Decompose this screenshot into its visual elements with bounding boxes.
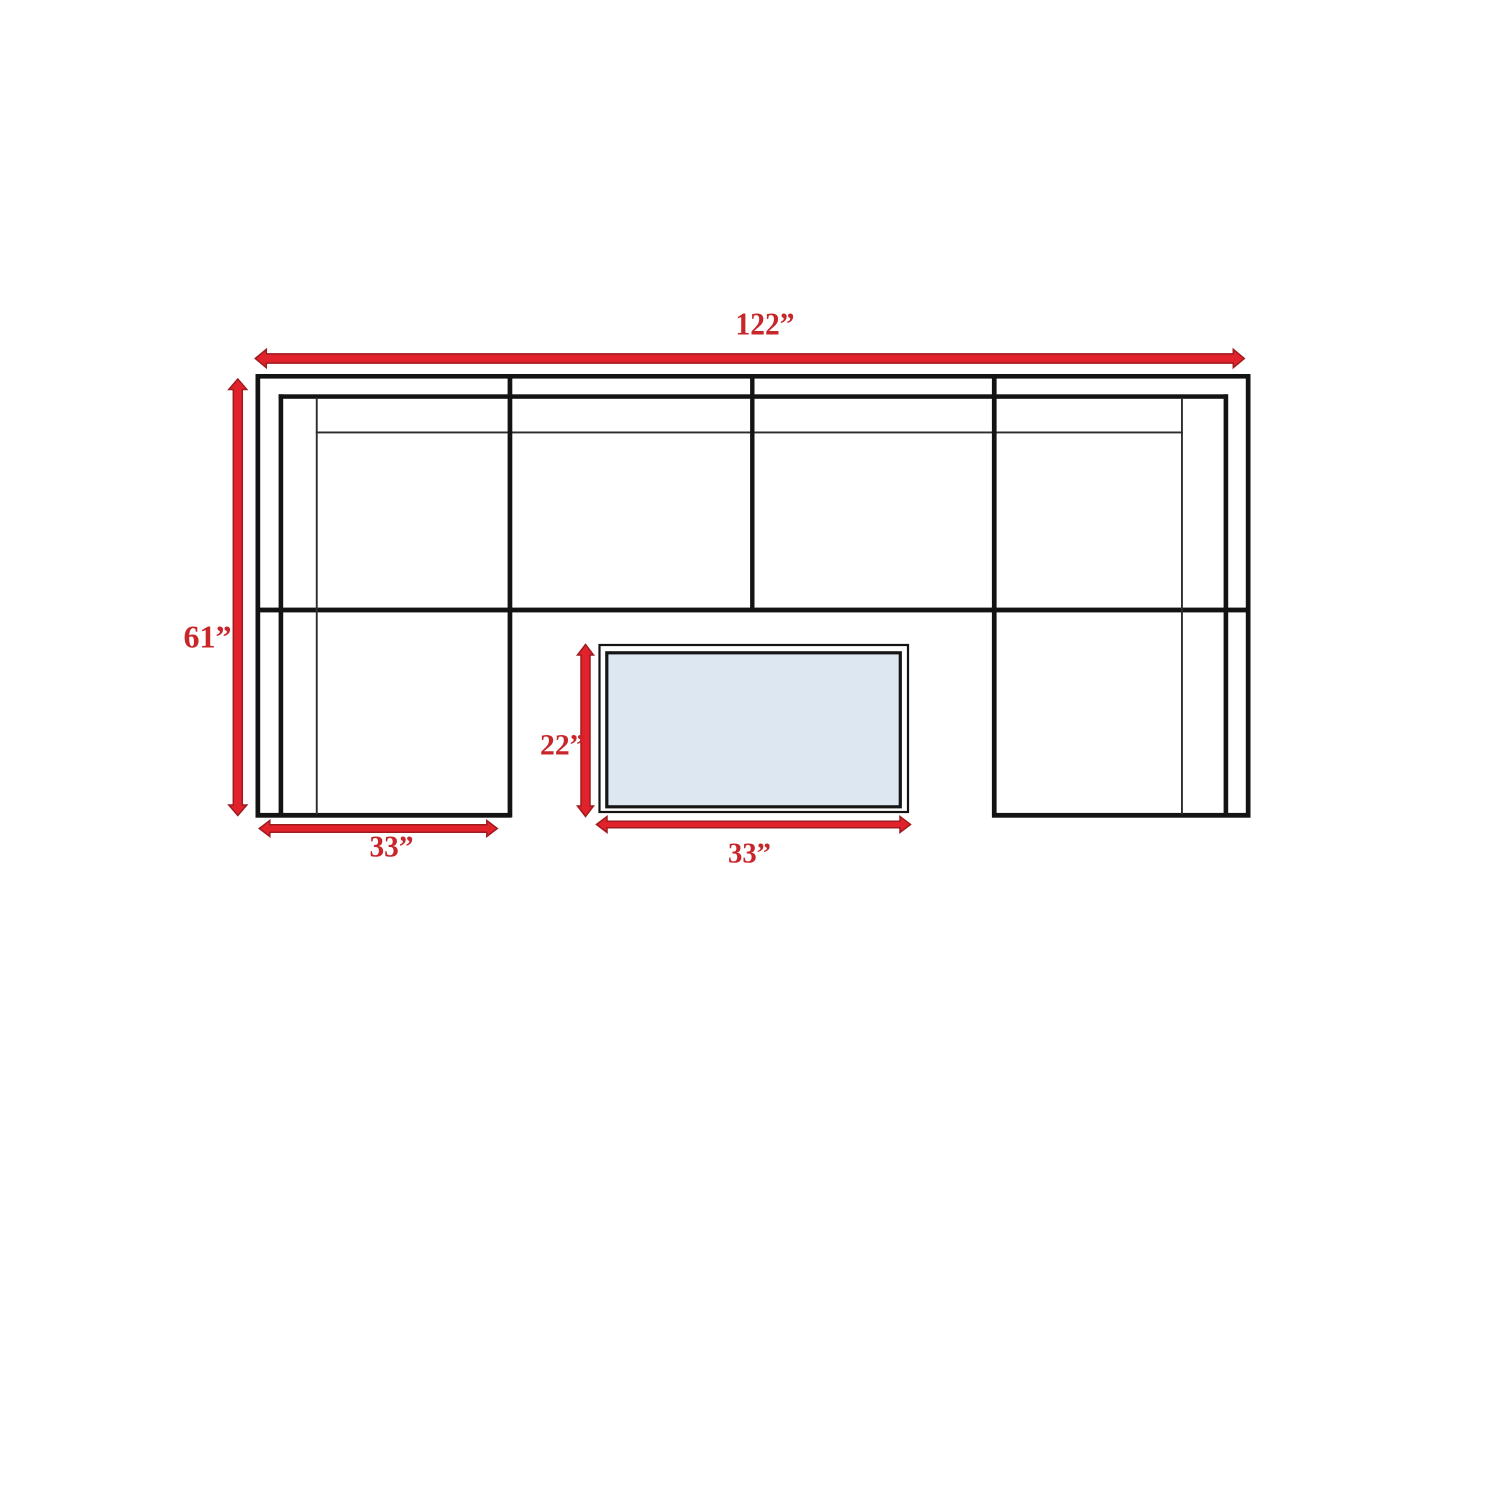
svg-text:33”: 33” [728,838,771,870]
svg-text:22”: 22” [540,729,585,762]
svg-text:61”: 61” [184,619,232,655]
svg-text:122”: 122” [736,306,795,342]
svg-text:33”: 33” [370,829,414,864]
